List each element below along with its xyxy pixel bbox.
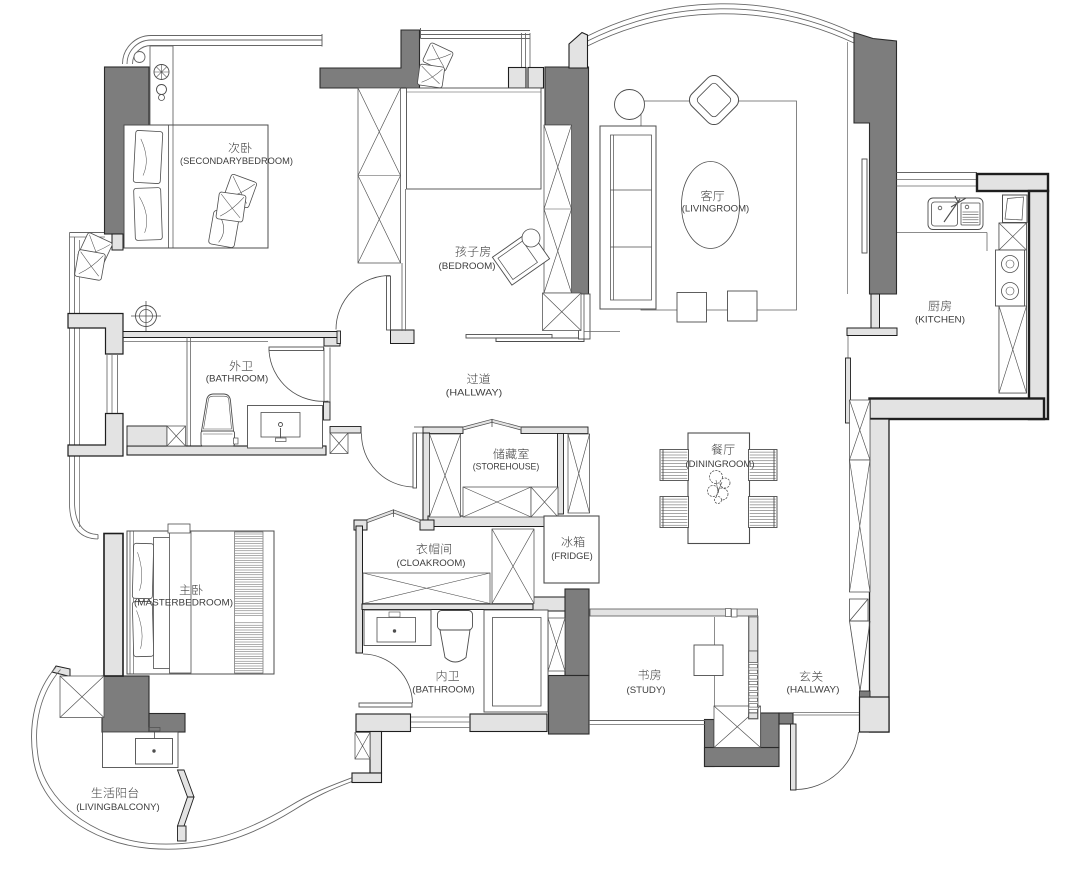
svg-text:(BEDROOM): (BEDROOM) [439, 261, 496, 271]
svg-text:(HALLWAY): (HALLWAY) [787, 685, 840, 695]
svg-text:(BATHROOM): (BATHROOM) [206, 374, 269, 384]
svg-text:(BATHROOM): (BATHROOM) [412, 685, 475, 695]
svg-text:(LIVINGROOM): (LIVINGROOM) [682, 204, 750, 214]
svg-text:(HALLWAY): (HALLWAY) [446, 388, 503, 398]
svg-text:(SECONDARYBEDROOM): (SECONDARYBEDROOM) [180, 156, 293, 166]
svg-text:(KITCHEN): (KITCHEN) [915, 315, 965, 325]
svg-text:(LIVINGBALCONY): (LIVINGBALCONY) [76, 802, 160, 812]
svg-text:(STUDY): (STUDY) [627, 685, 666, 695]
svg-text:(STOREHOUSE): (STOREHOUSE) [473, 462, 540, 472]
svg-text:(FRIDGE): (FRIDGE) [551, 551, 593, 561]
svg-text:(CLOAKROOM): (CLOAKROOM) [397, 558, 466, 568]
svg-text:(MASTERBEDROOM): (MASTERBEDROOM) [134, 598, 233, 608]
svg-text:(DININGROOM): (DININGROOM) [686, 459, 755, 469]
